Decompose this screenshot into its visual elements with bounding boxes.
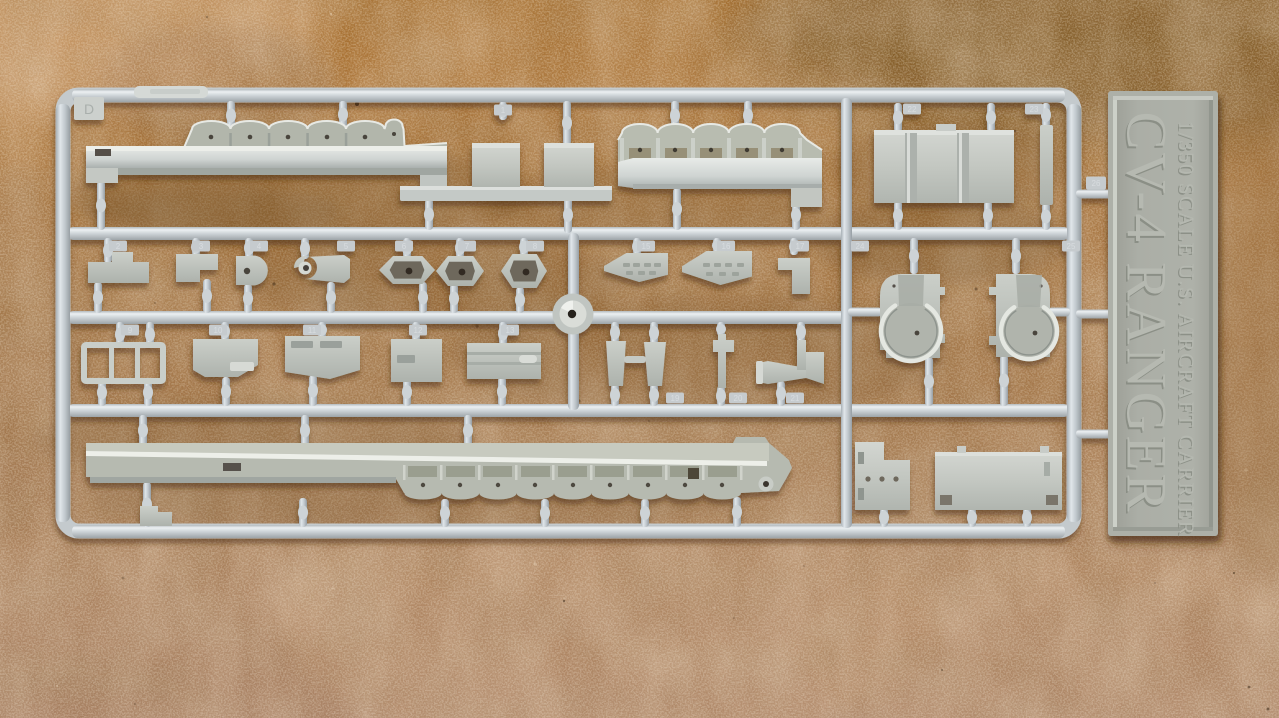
svg-text:22: 22: [908, 105, 917, 114]
svg-text:7: 7: [465, 242, 470, 251]
svg-text:11: 11: [308, 326, 317, 335]
svg-text:24: 24: [856, 242, 865, 251]
svg-text:6: 6: [402, 242, 407, 251]
svg-text:19: 19: [671, 394, 680, 403]
svg-text:D: D: [84, 101, 94, 117]
svg-text:4: 4: [257, 242, 262, 251]
svg-text:15: 15: [642, 242, 651, 251]
svg-text:3: 3: [199, 242, 204, 251]
svg-text:25: 25: [1067, 242, 1076, 251]
svg-text:12: 12: [414, 326, 423, 335]
svg-text:16: 16: [722, 242, 731, 251]
svg-text:13: 13: [506, 326, 515, 335]
svg-text:2: 2: [116, 242, 121, 251]
svg-text:CV-4 RANGER: CV-4 RANGER: [1115, 111, 1178, 514]
svg-text:23: 23: [1030, 105, 1039, 114]
svg-text:26: 26: [1092, 179, 1101, 188]
svg-text:1: 1: [501, 106, 506, 115]
svg-text:5: 5: [344, 242, 349, 251]
svg-text:8: 8: [533, 242, 538, 251]
svg-text:9: 9: [128, 326, 133, 335]
svg-text:21: 21: [791, 394, 800, 403]
svg-text:17: 17: [796, 242, 805, 251]
svg-text:10: 10: [214, 326, 223, 335]
svg-text:20: 20: [734, 394, 743, 403]
